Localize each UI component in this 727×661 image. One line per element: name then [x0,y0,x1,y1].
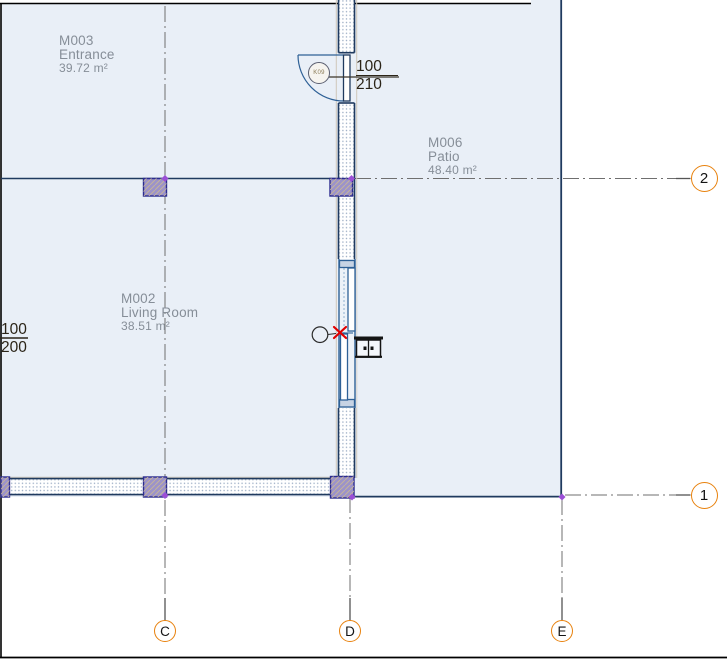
door-width: 100 [356,59,398,76]
top-margin [0,0,531,3]
column[interactable] [144,179,167,197]
room-area: 48.40 m² [428,164,477,178]
room-tag-entrance[interactable]: M003 Entrance 39.72 m² [59,34,115,76]
grid-bubble-label: D [345,624,355,639]
room-id: M006 [428,136,477,150]
grid-bubble-label: 2 [700,170,708,187]
room-tag-living-room[interactable]: M002 Living Room 38.51 m² [121,292,198,334]
grid-bubble-label: E [557,624,566,639]
grid-bubble-2[interactable]: 2 [691,165,718,192]
column[interactable] [331,477,355,499]
plan-linework [0,0,727,661]
casement-icon[interactable] [354,337,383,358]
column[interactable] [330,179,353,197]
grid-bubble-label: C [160,624,170,639]
window-frame-cap-top [340,261,355,268]
room-tag-patio[interactable]: M006 Patio 48.40 m² [428,136,477,178]
window-dimension-tag[interactable]: 100 200 [1,322,29,356]
grid-bubble-c[interactable]: C [154,620,176,642]
wall-bottom[interactable] [1,479,352,495]
room-name: Patio [428,150,477,164]
window-width: 100 [1,322,29,338]
room-name: Living Room [121,306,198,320]
grid-bubble-e[interactable]: E [551,620,573,642]
room-area: 38.51 m² [121,320,198,334]
window-panel-lower [341,334,348,400]
door-height: 210 [356,76,398,93]
room-id: M002 [121,292,198,306]
door-keynote-tag[interactable]: K09 [308,62,330,84]
grid-bubble-1[interactable]: 1 [691,482,718,509]
room-id: M003 [59,34,115,48]
window-panel-upper [348,268,355,331]
room-area: 39.72 m² [59,62,115,76]
door-leaf [344,55,351,101]
grid-bubble-d[interactable]: D [339,620,361,642]
window-height: 200 [1,338,29,356]
room-name: Entrance [59,48,115,62]
floor-plan-canvas[interactable]: M003 Entrance 39.72 m² M006 Patio 48.40 … [0,0,727,661]
door-keynote-label: K09 [313,70,325,76]
column[interactable] [1,477,10,497]
door-dimension-tag[interactable]: 100 210 [352,59,398,93]
grid-bubble-label: 1 [700,487,708,504]
